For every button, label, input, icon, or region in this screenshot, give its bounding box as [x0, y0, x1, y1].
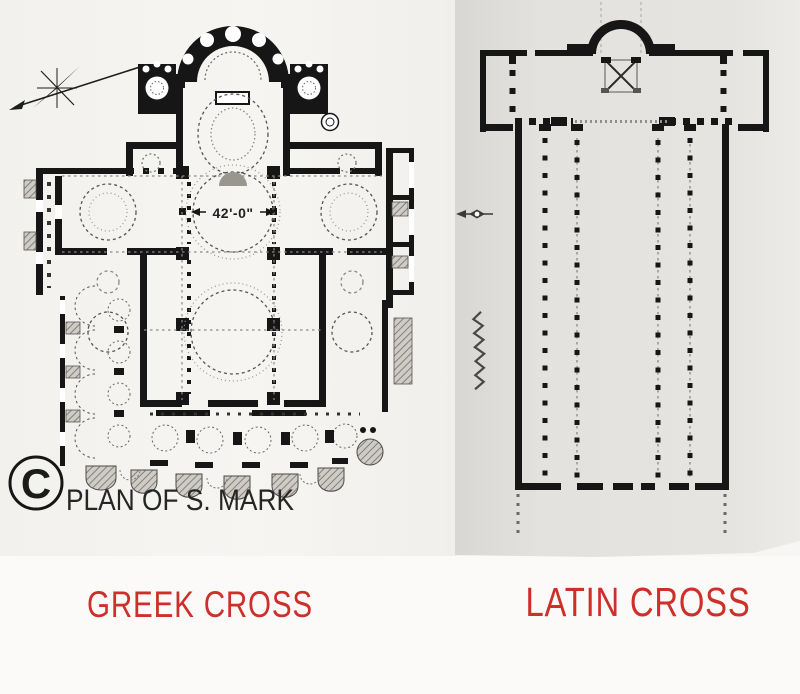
colonnade-dots-group: [49, 171, 360, 414]
plan-caption: PLAN OF S. MARK: [66, 484, 294, 517]
bottom-margin: [0, 556, 800, 694]
dome-dimension-label: 42'-0": [213, 205, 254, 221]
latin-cross-label: LATIN CROSS: [518, 582, 758, 623]
dimension-annotation: 42'-0": [191, 205, 275, 221]
apse-group: [138, 26, 339, 176]
greek-cross-label: GREEK CROSS: [84, 586, 316, 623]
latin-cross-plan: [455, 0, 800, 562]
comparison-sheet: 42'-0" C PLAN OF S. MARK: [0, 0, 800, 694]
copyright-symbol: C: [21, 460, 51, 507]
north-arrow-icon: [9, 66, 143, 110]
piers-group: [176, 166, 280, 405]
west-narthex-group: [66, 286, 130, 458]
walls-group: [24, 142, 414, 466]
domes-group: [80, 94, 377, 381]
greek-cross-plan: 42'-0" C PLAN OF S. MARK: [0, 0, 456, 562]
apse-conch-shade: [219, 172, 247, 186]
